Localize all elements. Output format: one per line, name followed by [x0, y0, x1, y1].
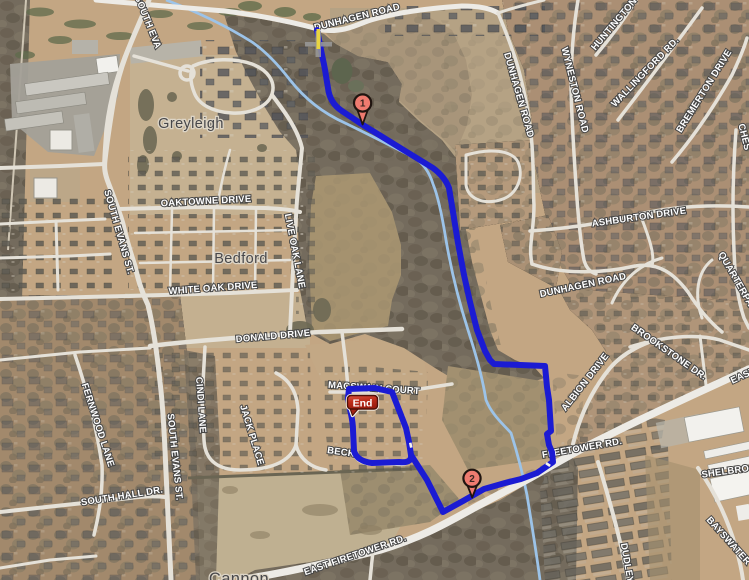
svg-text:End: End: [353, 397, 373, 409]
svg-text:Greyleigh: Greyleigh: [158, 116, 224, 132]
svg-text:Bedford: Bedford: [214, 251, 268, 267]
svg-text:1: 1: [360, 99, 366, 110]
svg-text:2: 2: [469, 474, 475, 485]
svg-text:Cannon: Cannon: [209, 570, 269, 580]
